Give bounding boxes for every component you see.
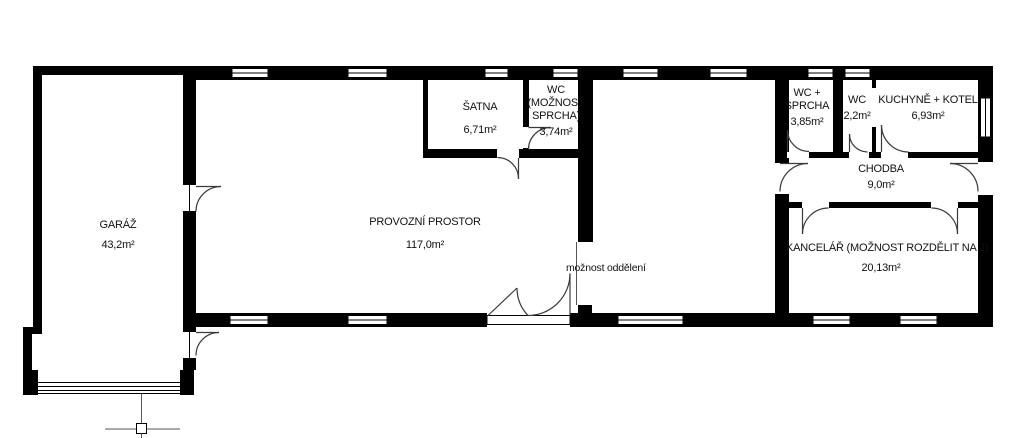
room-area: 20,13m² (786, 262, 976, 275)
division-note: možnost oddělení (566, 262, 646, 274)
opening-kuchyne (881, 152, 908, 158)
door-arc (950, 164, 978, 192)
door-arc (498, 158, 519, 179)
opening-wc-sprcha (787, 152, 809, 158)
door-arc (882, 125, 909, 152)
room-area: 3,85m² (779, 116, 835, 129)
door-arc (803, 208, 829, 234)
room-name: CHODBA (831, 163, 931, 176)
north-wall (183, 66, 993, 80)
satna-west-partition (423, 80, 428, 158)
garage-west-wall-upper (33, 66, 42, 334)
garage-se-corner (180, 370, 194, 395)
room-label-provozni: PROVOZNÍ PROSTOR 117,0m² (355, 216, 495, 252)
opening-kancelar-left (802, 202, 829, 208)
opening-entrance (978, 162, 993, 195)
door-arc (850, 134, 868, 152)
door-arc (517, 288, 528, 316)
south-wall (183, 313, 993, 327)
room-area: 9,0m² (831, 179, 931, 192)
door-leaf (488, 288, 517, 316)
division-south-stub (578, 305, 592, 313)
opening-kancelar-right (931, 202, 958, 208)
room-name: KUCHYNĚ + KOTEL (858, 94, 998, 107)
floor-plan: GARÁŽ 43,2m² PROVOZNÍ PROSTOR 117,0m² ŠA… (0, 0, 1024, 438)
garage-door-icon (32, 383, 180, 394)
room-area: 3,74m² (527, 126, 585, 139)
room-name: ŠATNA (435, 101, 525, 114)
garage-top-wall (33, 66, 196, 75)
room-area: 43,2m² (68, 239, 168, 252)
room-area: 117,0m² (355, 239, 495, 252)
room-name: KANCELÁŘ (MOŽNOST ROZDĚLIT NA 2) (786, 242, 976, 255)
wc-kuchyne-partition-top (872, 80, 876, 88)
room-area: 6,93m² (858, 110, 998, 123)
room-label-kuchyne: KUCHYNĚ + KOTEL 6,93m² (858, 94, 998, 123)
double-door-threshold (487, 316, 570, 325)
door-arc (196, 187, 221, 212)
room-name: PROVOZNÍ PROSTOR (355, 216, 495, 229)
room-name: WC + SPRCHA (779, 87, 835, 113)
room-name: GARÁŽ (68, 219, 168, 232)
room-label-garaz: GARÁŽ 43,2m² (68, 219, 168, 252)
opening-provozni-chodba (775, 163, 789, 194)
room-label-wc-sprcha: WC + SPRCHA 3,85m² (779, 87, 835, 129)
opening-wc (849, 152, 869, 158)
opening-satna (497, 149, 519, 158)
door-arc (196, 333, 219, 356)
garage-east-wall (183, 66, 196, 370)
room-name: WC (MOŽNOST SPRCHA) (527, 84, 585, 123)
door-arc (528, 274, 570, 316)
wc-kuchyne-partition-bottom (872, 127, 876, 152)
axis-marker-icon (105, 394, 180, 438)
door-arc (932, 208, 958, 234)
room-label-satna: ŠATNA 6,71m² (435, 101, 525, 137)
door-arc (788, 130, 810, 152)
room-label-wc-moznost: WC (MOŽNOST SPRCHA) 3,74m² (527, 84, 585, 139)
room-area: 6,71m² (435, 124, 525, 137)
room-label-kancelar: KANCELÁŘ (MOŽNOST ROZDĚLIT NA 2) 20,13m² (786, 242, 976, 275)
room-label-chodba: CHODBA 9,0m² (831, 163, 931, 192)
